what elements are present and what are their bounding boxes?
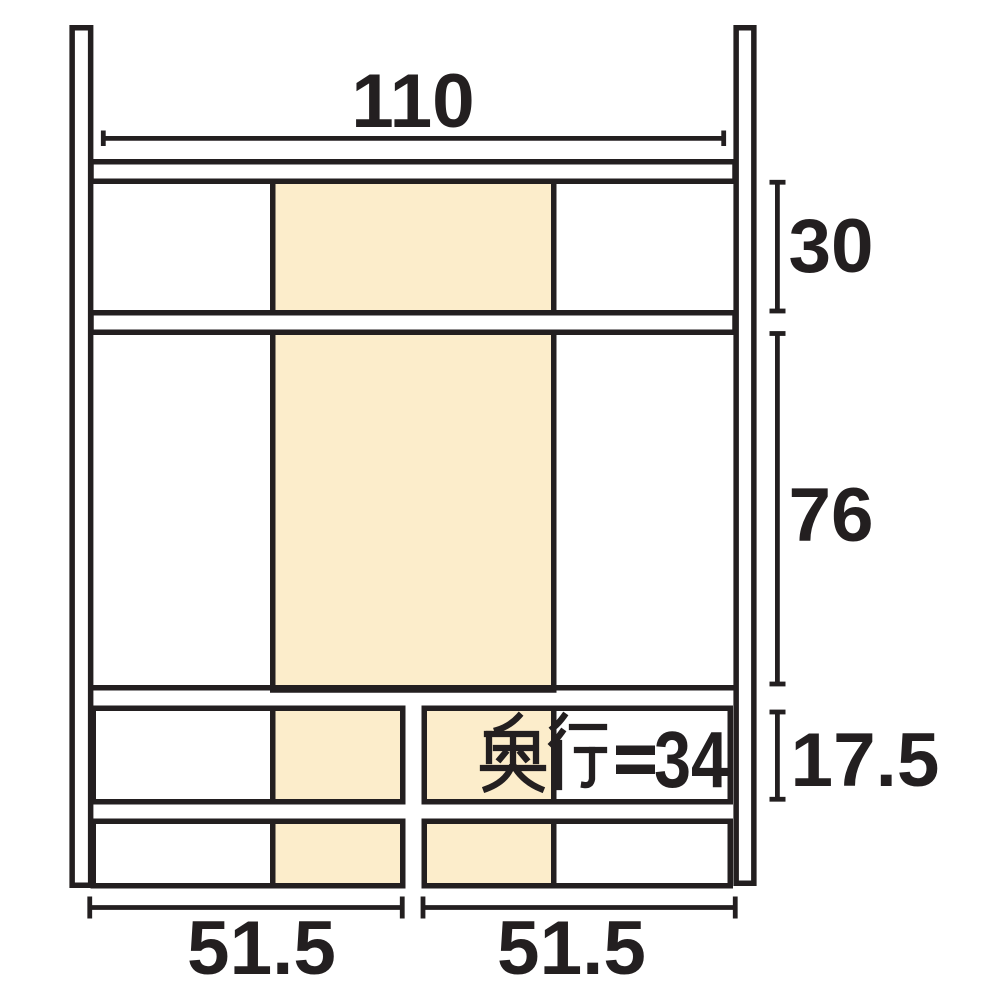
- svg-text:51.5: 51.5: [497, 906, 646, 991]
- svg-text:34: 34: [654, 715, 728, 804]
- svg-text:110: 110: [351, 59, 474, 144]
- svg-text:51.5: 51.5: [187, 906, 336, 991]
- svg-text:17.5: 17.5: [791, 718, 940, 803]
- svg-text:30: 30: [788, 204, 873, 289]
- svg-text:76: 76: [788, 473, 873, 558]
